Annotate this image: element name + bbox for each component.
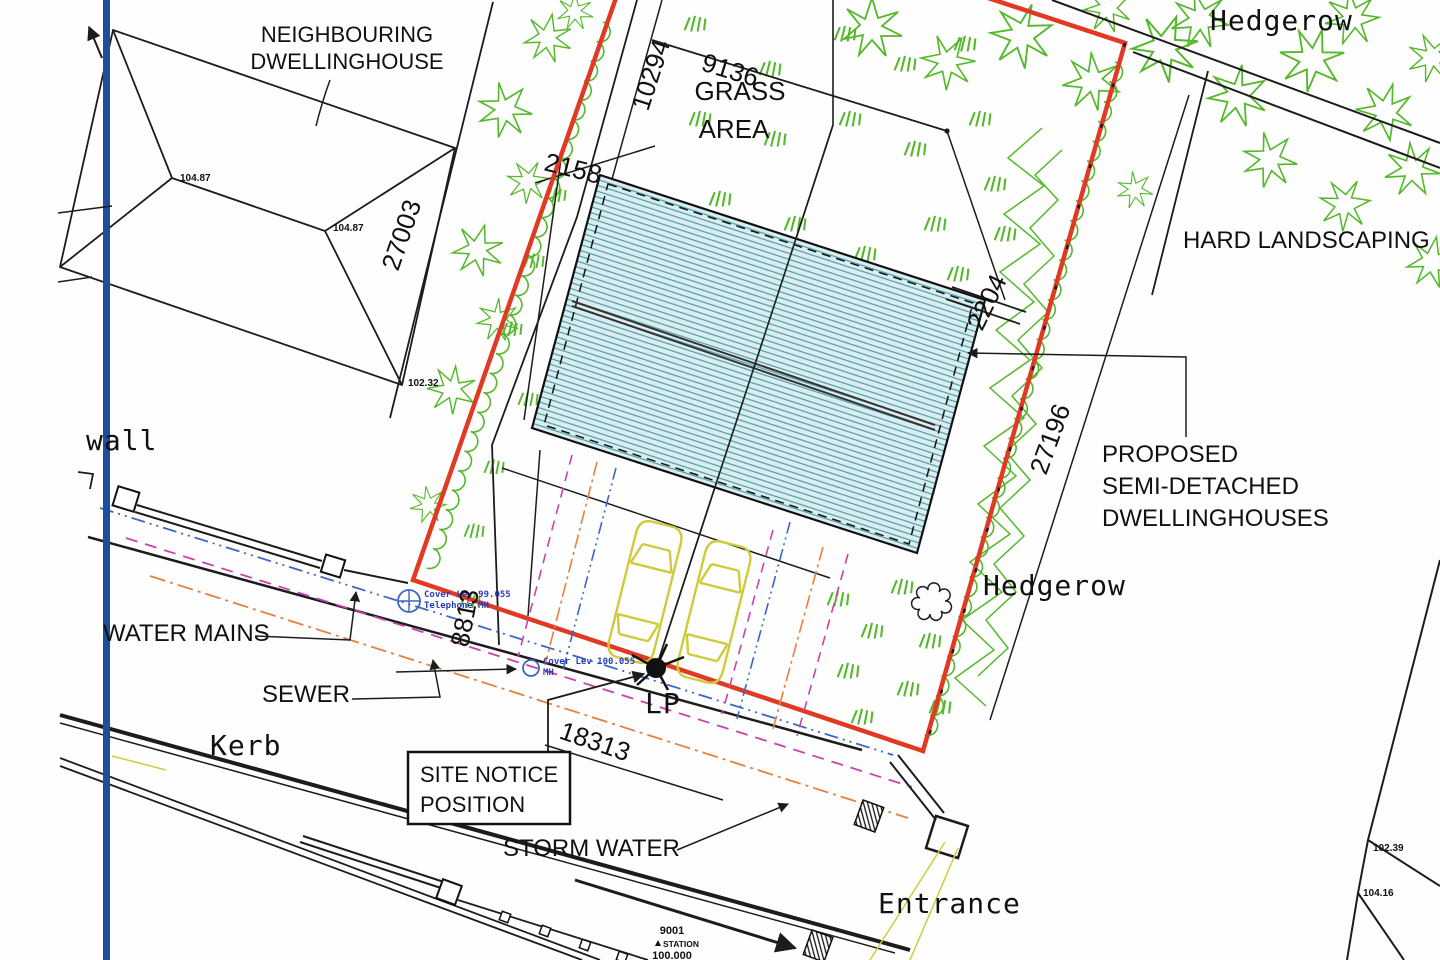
grass-area-label-line2: AREA xyxy=(699,114,770,144)
entrance-label: Entrance xyxy=(878,887,1021,920)
site-notice-label-line1: SITE NOTICE xyxy=(420,762,558,787)
sewer-label: SEWER xyxy=(262,681,350,708)
road xyxy=(60,508,912,960)
station-label: STATION xyxy=(663,939,699,949)
site-plan-svg: 104.87 104.87 102.32 102.39 104.16 xyxy=(0,0,1440,960)
north-arrow-icon xyxy=(89,27,102,58)
spot-level-ridge2: 104.87 xyxy=(333,223,364,234)
hedgerow-top-label: Hedgerow xyxy=(1210,4,1353,37)
car-1 xyxy=(606,519,685,666)
proposed-building xyxy=(532,125,1026,668)
front-wall-left xyxy=(78,472,408,583)
mh2-note-line1: Cover Lev 100.055 xyxy=(543,657,635,667)
mh2-note-line2: MH xyxy=(543,668,554,678)
kerb-label: Kerb xyxy=(210,729,281,762)
wall-label: wall xyxy=(86,424,157,457)
tree-outline xyxy=(912,583,952,620)
spot-level-ridge1: 104.87 xyxy=(180,173,211,184)
survey-station: 9001 STATION 100.000 xyxy=(652,925,699,960)
station-level: 100.000 xyxy=(652,950,692,960)
spot-level-eaves: 102.32 xyxy=(408,378,439,389)
neighbouring-label-line2: DWELLINGHOUSE xyxy=(250,49,443,74)
datum-line xyxy=(58,0,112,960)
right-corner-boundaries: 102.39 104.16 xyxy=(1347,560,1440,960)
proposed-label-line1: PROPOSED xyxy=(1102,441,1238,468)
dim-27003: 27003 xyxy=(375,196,427,274)
lp-label: LP xyxy=(645,687,681,720)
station-id: 9001 xyxy=(660,925,684,937)
dim-10294: 10294 xyxy=(625,36,676,114)
proposed-label-line2: SEMI-DETACHED xyxy=(1102,473,1299,500)
site-plan-drawing: 104.87 104.87 102.32 102.39 104.16 xyxy=(0,0,1440,960)
hard-landscaping-label: HARD LANDSCAPING xyxy=(1183,227,1430,254)
storm-water-label: STORM WATER xyxy=(503,835,680,862)
dim-27196: 27196 xyxy=(1023,400,1076,478)
water-mains-label: WATER MAINS xyxy=(103,620,270,647)
hedgerow-mid-label: Hedgerow xyxy=(983,569,1126,602)
proposed-label-line3: DWELLINGHOUSES xyxy=(1102,505,1329,532)
car-2 xyxy=(675,539,754,686)
spot-level-right-upper: 102.39 xyxy=(1373,843,1404,854)
neighbouring-label-line1: NEIGHBOURING xyxy=(261,22,433,47)
site-notice-label-line2: POSITION xyxy=(420,792,525,817)
spot-level-right-lower: 104.16 xyxy=(1363,888,1394,899)
